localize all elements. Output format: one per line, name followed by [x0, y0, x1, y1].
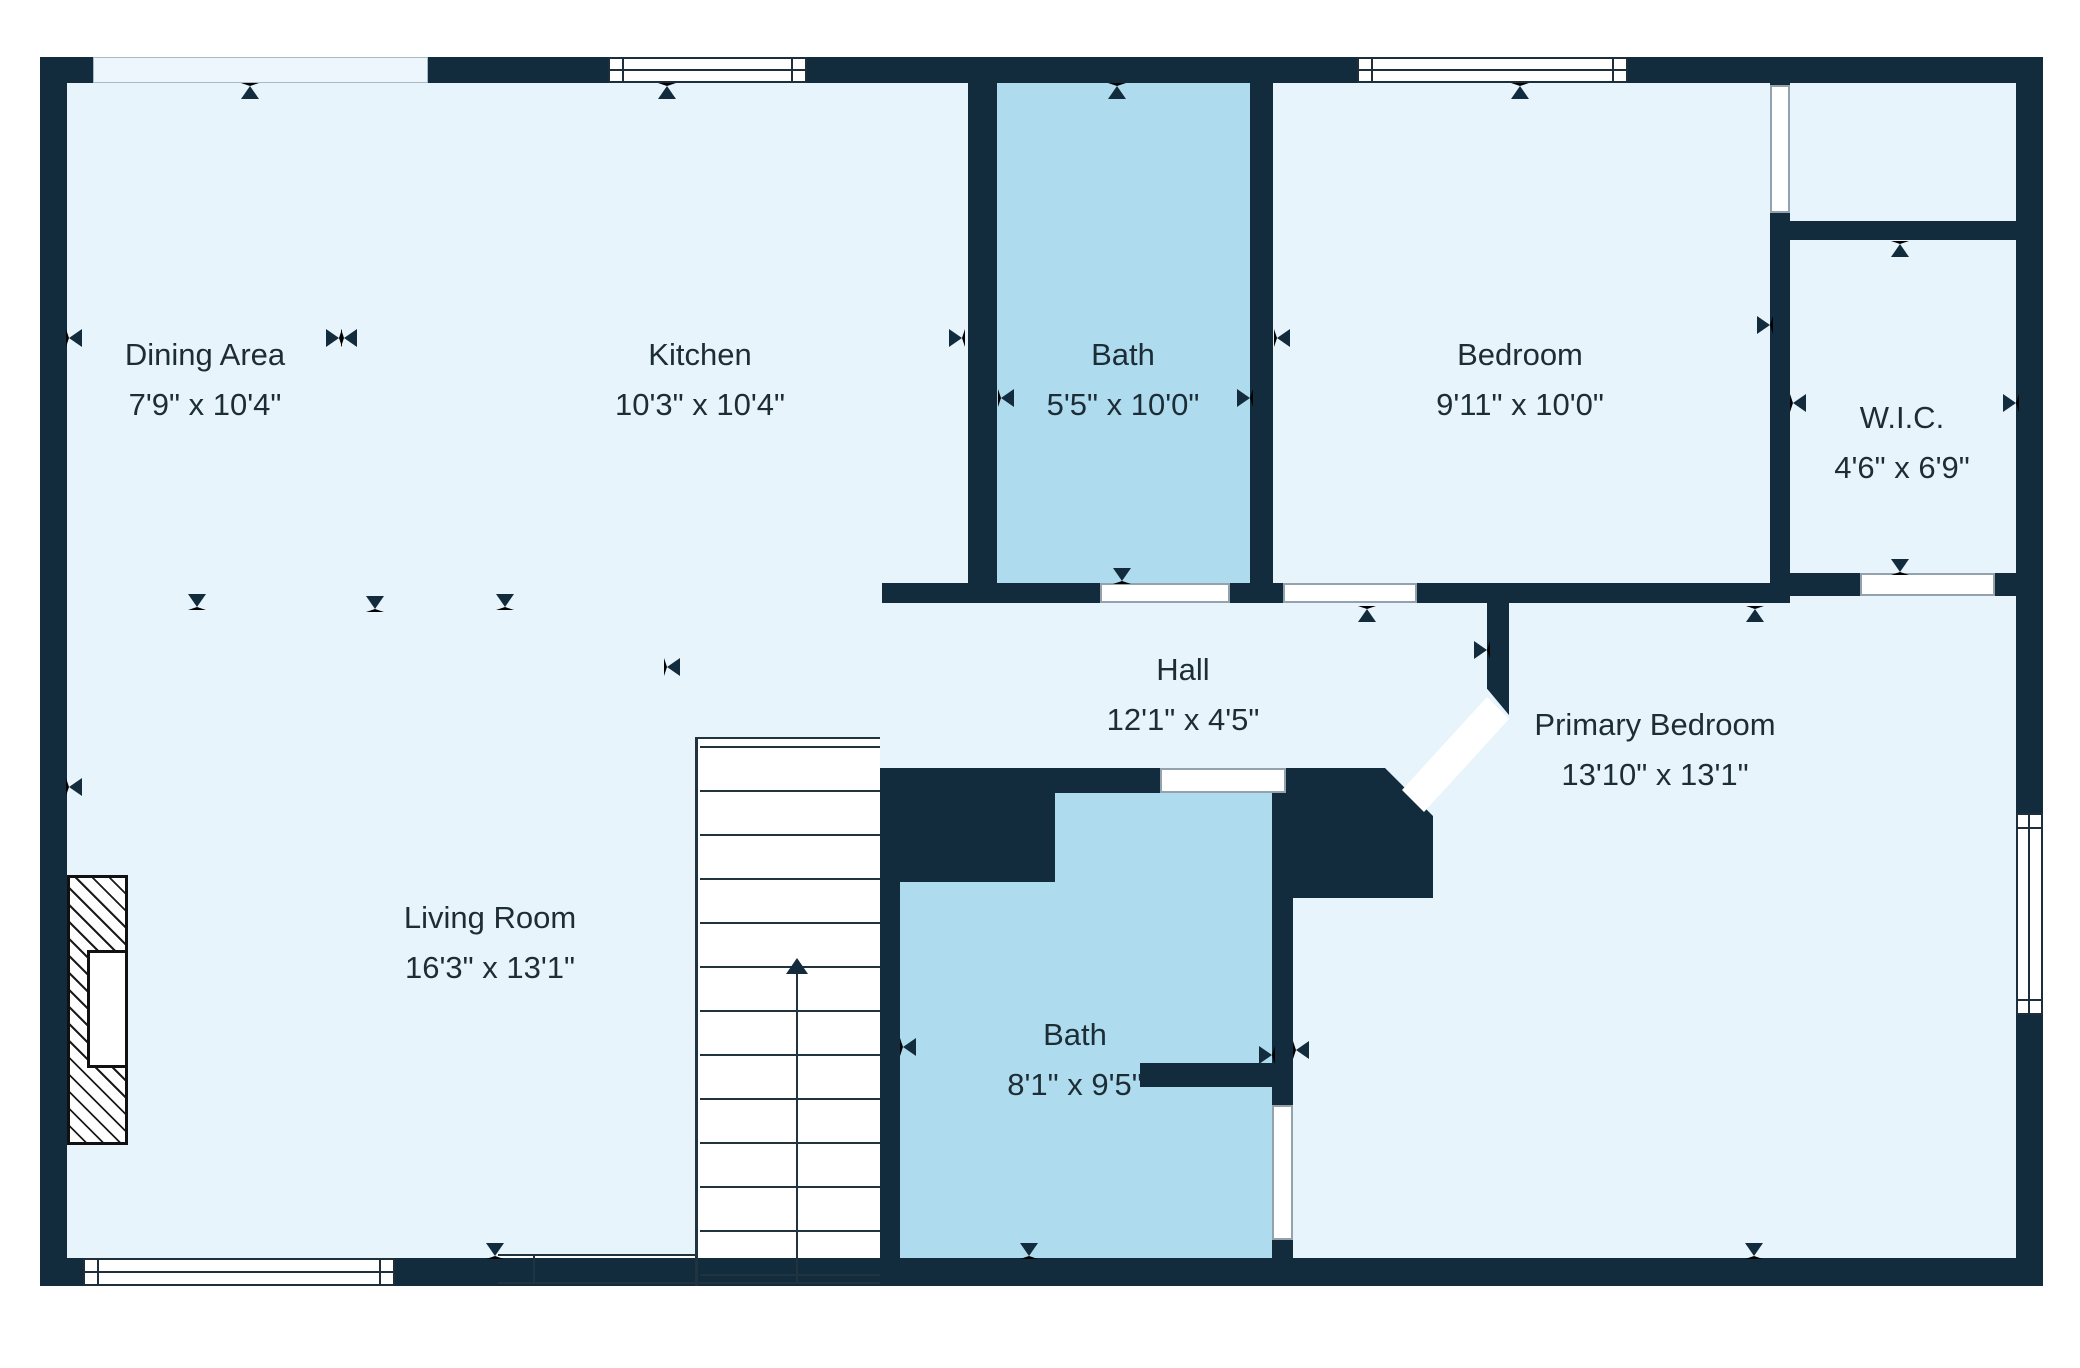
stairwell-edge-line — [695, 737, 698, 1286]
arrow-left-icon — [66, 778, 82, 796]
window-icon — [83, 1258, 395, 1286]
arrow-down-icon — [1745, 1243, 1763, 1259]
wall — [1230, 583, 1283, 603]
room-dimensions: 16'3" x 13'1" — [270, 943, 710, 993]
window-pane-line — [610, 69, 805, 71]
stair-tread — [700, 746, 880, 748]
stair-landing-line — [533, 1256, 535, 1284]
arrow-up-icon — [241, 83, 259, 99]
door-opening — [1860, 573, 1995, 596]
door-opening — [1770, 85, 1790, 213]
stair-tread — [700, 1054, 880, 1056]
window-frame-post — [622, 59, 624, 81]
arrow-up-icon — [658, 83, 676, 99]
room-label-dining-area: Dining Area 7'9" x 10'4" — [0, 330, 425, 430]
wall — [2016, 57, 2043, 1286]
wall — [1417, 583, 1770, 603]
room-dimensions: 4'6" x 6'9" — [1682, 443, 2080, 493]
arrow-down-icon — [1891, 559, 1909, 575]
room-dimensions: 10'3" x 10'4" — [480, 380, 920, 430]
stair-landing-line — [498, 1254, 695, 1256]
arrow-down-icon — [496, 594, 514, 610]
wall — [1995, 573, 2016, 596]
arrow-down-icon — [486, 1243, 504, 1259]
stair-tread — [700, 790, 880, 792]
stair-tread — [700, 834, 880, 836]
window-strip — [93, 57, 428, 83]
window-frame-post — [379, 1260, 381, 1284]
arrow-left-icon — [664, 658, 680, 676]
window-pane-line — [2028, 815, 2030, 1013]
door-opening — [1272, 1105, 1293, 1240]
bath-bottom-nook-floor — [1055, 793, 1272, 882]
room-name: Dining Area — [0, 330, 425, 380]
stair-tread — [700, 1186, 880, 1188]
room-dimensions: 9'11" x 10'0" — [1300, 380, 1740, 430]
room-name: Bath — [855, 1010, 1295, 1060]
door-opening — [1160, 768, 1286, 793]
arrow-right-icon — [1474, 641, 1490, 659]
window-frame-post — [2018, 827, 2041, 829]
stair-tread — [700, 878, 880, 880]
room-name: Bath — [903, 330, 1343, 380]
arrow-up-icon — [786, 958, 808, 974]
room-name: Bedroom — [1300, 330, 1740, 380]
arrow-down-icon — [366, 596, 384, 612]
window-icon — [1357, 57, 1628, 83]
room-dimensions: 12'1" x 4'5" — [963, 695, 1403, 745]
window-frame-post — [1612, 59, 1614, 81]
room-label-bath-bottom: Bath 8'1" x 9'5" — [855, 1010, 1295, 1110]
window-icon — [2016, 813, 2043, 1015]
floor-plan: Dining Area 7'9" x 10'4" Kitchen 10'3" x… — [0, 0, 2080, 1368]
window-frame-post — [2018, 999, 2041, 1001]
room-name: W.I.C. — [1682, 393, 2080, 443]
room-label-living-room: Living Room 16'3" x 13'1" — [270, 893, 710, 993]
window-frame-post — [791, 59, 793, 81]
room-dimensions: 8'1" x 9'5" — [855, 1060, 1295, 1110]
arrow-left-icon — [1293, 1041, 1309, 1059]
room-dimensions: 13'10" x 13'1" — [1435, 750, 1875, 800]
stair-tread — [700, 1274, 880, 1276]
room-name: Primary Bedroom — [1435, 700, 1875, 750]
window-frame-post — [1371, 59, 1373, 81]
room-label-hall: Hall 12'1" x 4'5" — [963, 645, 1403, 745]
arrow-up-icon — [1891, 241, 1909, 257]
window-pane-line — [85, 1271, 393, 1273]
stairwell-edge-line — [695, 737, 880, 739]
room-name: Kitchen — [480, 330, 920, 380]
room-name: Hall — [963, 645, 1403, 695]
stair-tread — [700, 1098, 880, 1100]
window-icon — [608, 57, 807, 83]
stair-landing-line — [498, 1282, 880, 1284]
room-label-wic: W.I.C. 4'6" x 6'9" — [1682, 393, 2080, 493]
arrow-down-icon — [188, 594, 206, 610]
wall — [882, 583, 1100, 603]
room-dimensions: 7'9" x 10'4" — [0, 380, 425, 430]
wall — [1272, 1240, 1293, 1258]
stair-center-line — [796, 972, 798, 1282]
wall — [1770, 221, 2016, 240]
arrow-up-icon — [1511, 83, 1529, 99]
wall — [40, 57, 67, 1286]
room-label-bath-top: Bath 5'5" x 10'0" — [903, 330, 1343, 430]
room-name: Living Room — [270, 893, 710, 943]
wall — [1770, 573, 1860, 596]
stair-tread — [700, 922, 880, 924]
window-pane-line — [1359, 69, 1626, 71]
room-label-primary-bedroom: Primary Bedroom 13'10" x 13'1" — [1435, 700, 1875, 800]
arrow-down-icon — [1020, 1243, 1038, 1259]
room-dimensions: 5'5" x 10'0" — [903, 380, 1343, 430]
arrow-right-icon — [1757, 316, 1773, 334]
arrow-up-icon — [1108, 83, 1126, 99]
fireplace-firebox — [87, 950, 128, 1068]
stair-tread — [700, 1010, 880, 1012]
wall — [880, 768, 1160, 793]
stair-tread — [700, 1230, 880, 1232]
arrow-up-icon — [1746, 606, 1764, 622]
wall — [880, 793, 1055, 882]
arrow-up-icon — [1358, 606, 1376, 622]
arrow-down-icon — [1113, 568, 1131, 584]
room-label-bedroom: Bedroom 9'11" x 10'0" — [1300, 330, 1740, 430]
window-frame-post — [97, 1260, 99, 1284]
door-opening — [1100, 583, 1230, 603]
stair-tread — [700, 1142, 880, 1144]
door-opening — [1283, 583, 1417, 603]
room-label-kitchen: Kitchen 10'3" x 10'4" — [480, 330, 920, 430]
